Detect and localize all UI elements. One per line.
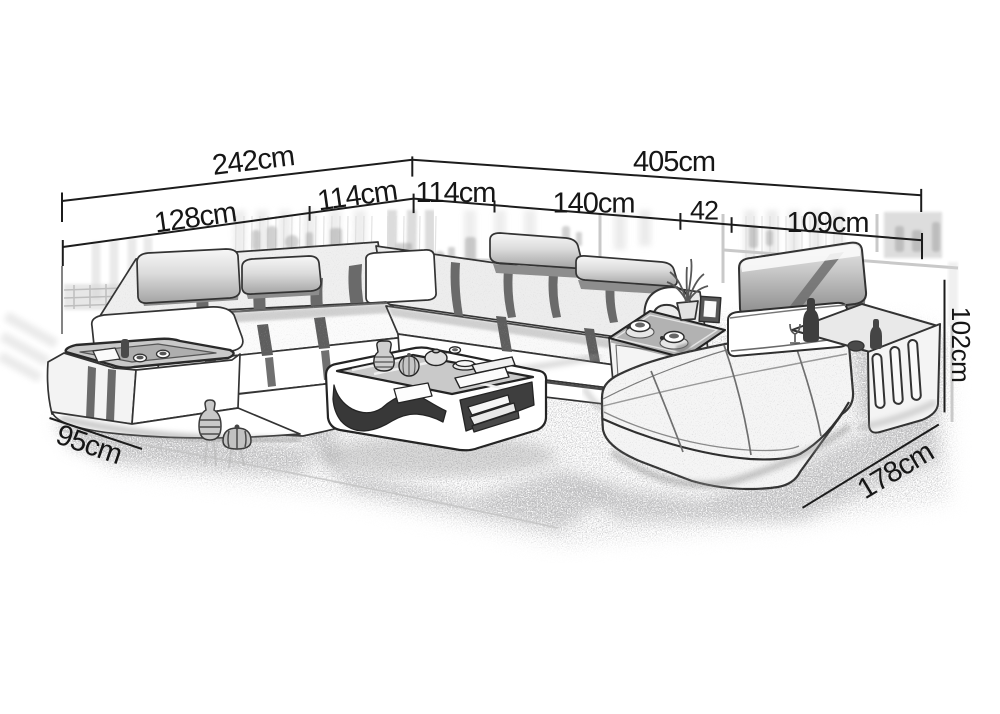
svg-text:405cm: 405cm [633,146,715,178]
svg-text:114cm: 114cm [416,177,496,209]
svg-text:102cm: 102cm [946,307,976,383]
svg-text:42: 42 [690,196,718,226]
svg-text:140cm: 140cm [552,188,634,220]
svg-text:109cm: 109cm [786,207,868,239]
